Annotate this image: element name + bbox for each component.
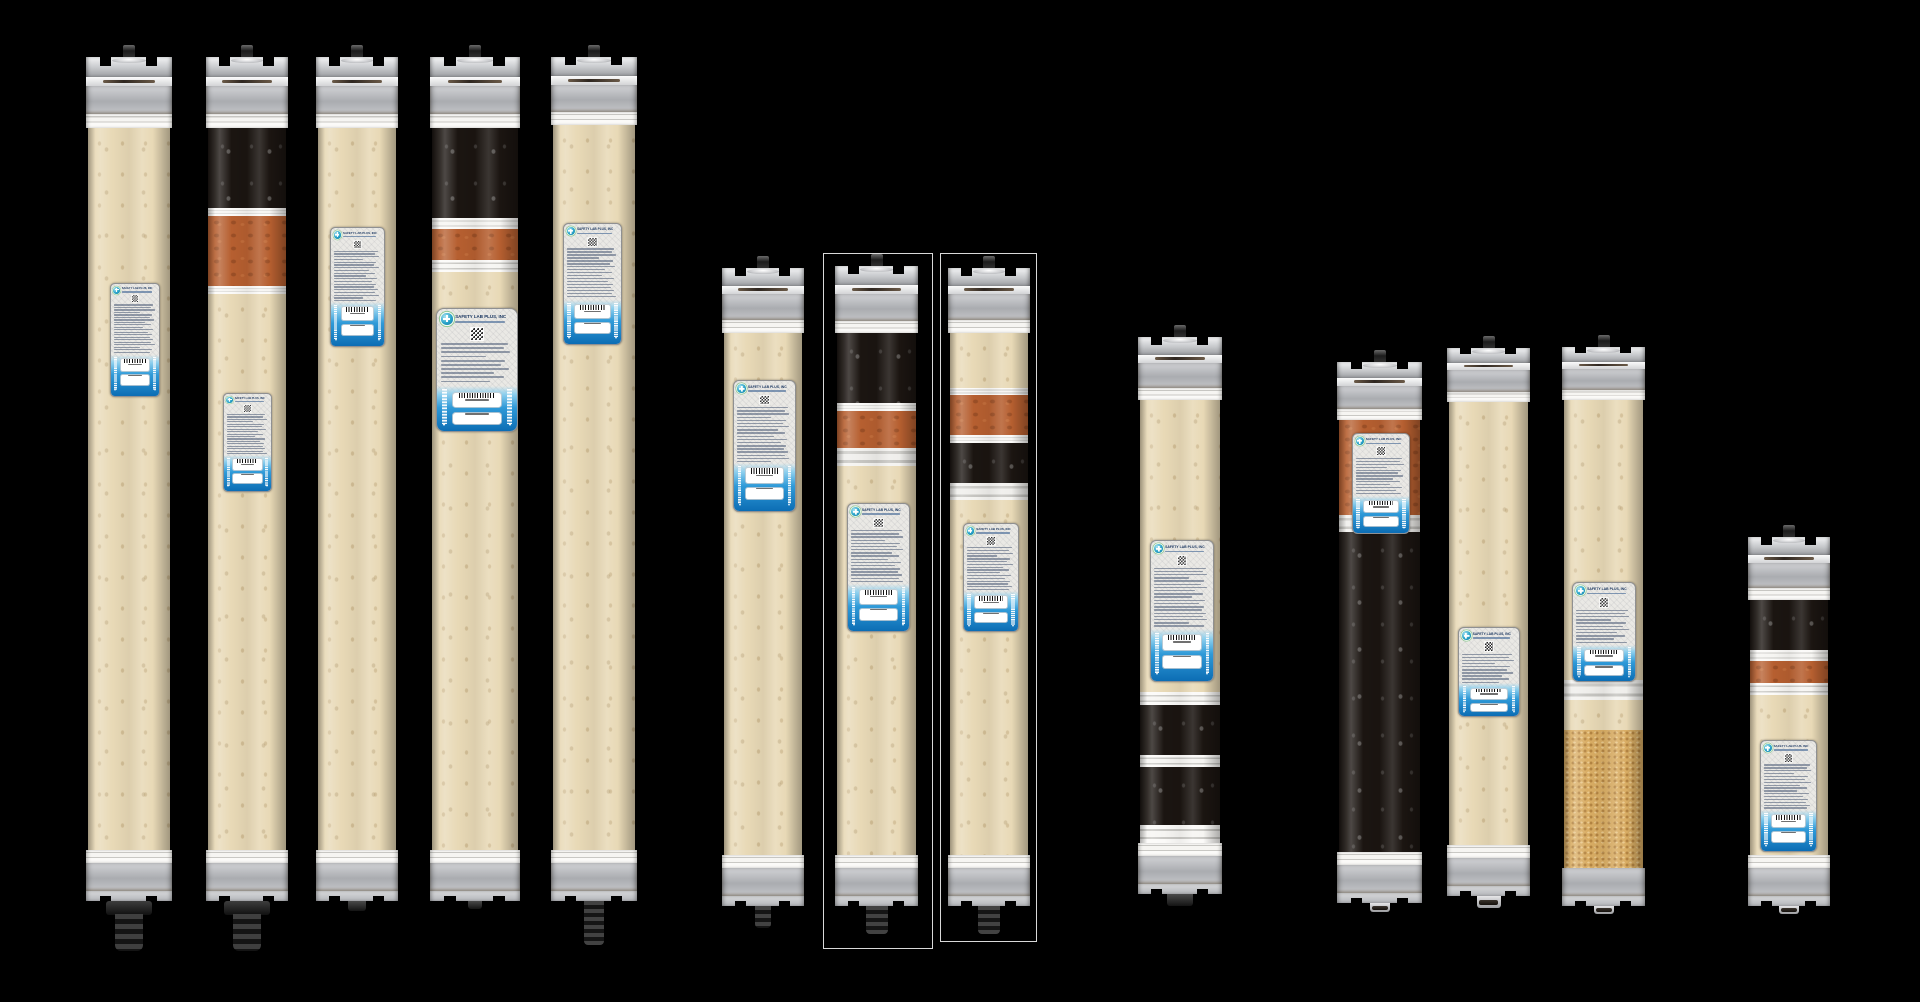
cap-stripe-band	[430, 114, 520, 128]
text-line	[1576, 616, 1629, 617]
bottom-stripe-band	[206, 850, 288, 863]
text-line	[334, 275, 366, 276]
text-line	[334, 281, 372, 282]
label-header-text: SAFETY LAB PLUS, INC	[122, 288, 157, 293]
cap-shiny-band	[430, 77, 520, 86]
barcode-caption-line	[241, 464, 255, 465]
vertical-text-strip-right	[1512, 686, 1516, 711]
crown-notch-left	[100, 56, 111, 66]
crown-notch-right	[493, 56, 505, 66]
text-line	[114, 327, 143, 328]
label-header-text: SAFETY LAB PLUS, INC	[577, 228, 618, 234]
text-line	[737, 432, 785, 433]
resin-segment-band	[432, 260, 518, 272]
brand-logo-icon	[334, 231, 342, 239]
text-line	[1154, 616, 1203, 617]
field-caption-line	[128, 375, 142, 376]
label-fine-print	[224, 413, 271, 454]
text-line	[567, 251, 612, 252]
text-line	[567, 293, 612, 294]
cap-slot	[568, 79, 620, 82]
barcode-icon	[1590, 650, 1618, 654]
top-collar	[1363, 363, 1397, 368]
text-line	[1356, 481, 1400, 482]
text-line	[567, 296, 616, 297]
text-line	[1154, 619, 1207, 620]
label-header: SAFETY LAB PLUS, INC	[734, 381, 795, 394]
barcode-caption-line	[1373, 506, 1389, 507]
blank-field-box	[1364, 517, 1398, 526]
castle-notch-left	[1351, 898, 1362, 904]
label-header: SAFETY LAB PLUS, INC	[224, 394, 271, 404]
crown-notch-right	[1505, 347, 1516, 354]
cap-gray-block	[86, 86, 172, 114]
vertical-text-strip-left	[1463, 686, 1467, 711]
cartridge-c2	[206, 43, 288, 951]
text-line	[441, 356, 485, 358]
product-label: SAFETY LAB PLUS, INC	[563, 223, 622, 345]
barcode-icon	[459, 393, 495, 398]
label-tagline-line	[1165, 551, 1204, 553]
bottom-gray-block	[316, 863, 398, 891]
text-line	[737, 426, 789, 427]
product-label: SAFETY LAB PLUS, INC	[1760, 740, 1817, 852]
qr-code-icon	[471, 328, 483, 340]
label-header: SAFETY LAB PLUS, INC	[331, 228, 384, 239]
crown-notch-left	[444, 56, 456, 66]
cap-slot	[1764, 557, 1813, 560]
bottom-stripe-band	[1447, 845, 1530, 858]
crown-notch-left	[1761, 536, 1772, 545]
vertical-text-strip-left	[567, 303, 570, 338]
bottom-castellation	[86, 891, 172, 901]
text-line	[1356, 461, 1400, 462]
text-line	[1764, 799, 1808, 800]
bottom-connector-flange	[224, 901, 270, 915]
label-blue-footer	[437, 386, 517, 431]
barcode-box	[453, 393, 501, 407]
label-fine-print	[1353, 457, 1409, 494]
label-header: SAFETY LAB PLUS, INC	[111, 284, 159, 294]
text-line	[1764, 764, 1809, 765]
brand-logo-icon	[567, 227, 575, 235]
text-line	[1462, 654, 1512, 655]
text-line	[737, 458, 789, 459]
bottom-castellation	[430, 891, 520, 901]
qr-code-icon	[760, 396, 769, 405]
cap-stripe-band	[1562, 390, 1645, 400]
bottom-stripe-band	[430, 850, 520, 863]
cap-slot	[1354, 380, 1405, 383]
cap-shiny-band	[551, 76, 637, 85]
bottom-stem	[584, 901, 604, 945]
cap-slot	[448, 80, 502, 83]
text-line	[334, 286, 375, 287]
bottom-stem	[755, 906, 771, 928]
bottom-castellation	[1337, 893, 1422, 903]
crown-notch-right	[611, 56, 622, 65]
text-line	[1356, 484, 1390, 485]
text-line	[334, 295, 379, 296]
label-fine-print	[1459, 652, 1519, 683]
text-line	[441, 381, 489, 383]
text-line	[1764, 785, 1800, 786]
crown-notch-right	[263, 56, 274, 66]
field-caption-line	[1595, 666, 1613, 667]
top-collar	[231, 58, 264, 63]
bottom-gray-block	[86, 863, 172, 891]
castle-notch-right	[1505, 891, 1516, 897]
vertical-text-strip-left	[1155, 633, 1159, 673]
blank-field-box	[1163, 656, 1200, 668]
barcode-box	[233, 459, 261, 470]
bottom-stripe-band	[1138, 843, 1222, 856]
crown-notch-left	[735, 267, 746, 276]
text-line	[567, 284, 613, 285]
crown-notch-left	[1460, 347, 1471, 354]
cap-stripe-band	[1748, 588, 1830, 600]
vertical-text-strip-left	[114, 357, 117, 389]
text-line	[1154, 571, 1203, 572]
blank-field-box	[575, 323, 609, 334]
text-line	[1356, 490, 1396, 491]
text-line	[1764, 787, 1807, 788]
bottom-nub	[1594, 906, 1614, 914]
resin-segment-band	[1140, 825, 1221, 843]
text-line	[227, 446, 263, 447]
blank-field-box	[233, 474, 261, 483]
label-header: SAFETY LAB PLUS, INC	[1151, 541, 1213, 554]
barcode-caption-line	[350, 313, 365, 314]
text-line	[567, 287, 611, 288]
blank-field-box	[1471, 704, 1507, 712]
text-line	[737, 417, 771, 418]
qr-code-icon	[132, 295, 139, 302]
cap-shiny-band	[722, 286, 804, 294]
text-line	[1154, 574, 1207, 575]
cap-gray-block	[551, 85, 637, 112]
top-collar	[577, 58, 611, 63]
cap-gray-block	[1748, 563, 1830, 588]
brand-logo-icon	[441, 313, 453, 325]
label-fine-print	[1573, 608, 1635, 643]
text-line	[227, 453, 267, 454]
cap-stripe-band	[1337, 409, 1422, 420]
top-collar	[112, 58, 146, 63]
text-line	[567, 290, 614, 291]
text-line	[1764, 773, 1794, 774]
bottom-castellation	[1562, 896, 1645, 906]
brand-logo-icon	[737, 384, 746, 393]
castle-notch-left	[444, 896, 456, 902]
text-line	[1462, 666, 1510, 667]
qr-code-icon	[244, 405, 251, 412]
label-header-text: SAFETY LAB PLUS, INC	[343, 232, 381, 237]
label-blue-footer	[111, 355, 159, 396]
bottom-gray-block	[1748, 868, 1830, 896]
text-line	[334, 289, 378, 290]
crown-notch-right	[1197, 336, 1208, 345]
bottom-gray-block	[430, 863, 520, 891]
field-caption-line	[350, 325, 365, 326]
label-blue-footer	[1353, 496, 1409, 533]
cap-stripe-band	[206, 114, 288, 128]
cap-stripe-band	[1138, 388, 1222, 400]
text-line	[114, 334, 152, 335]
cartridge-c6	[722, 254, 804, 928]
text-line	[1462, 663, 1495, 664]
resin-body	[88, 128, 171, 850]
cap-gray-block	[430, 86, 520, 114]
text-line	[114, 339, 154, 340]
bottom-castellation	[1138, 884, 1222, 894]
text-line	[1764, 805, 1809, 806]
text-line	[1154, 622, 1188, 623]
label-tagline-line	[122, 291, 152, 292]
label-blue-footer	[331, 302, 384, 346]
field-caption-line	[584, 323, 600, 324]
resin-segment-tan	[88, 128, 171, 850]
text-line	[114, 352, 150, 353]
text-line	[1356, 458, 1402, 459]
barcode-icon	[751, 468, 778, 473]
cap-shiny-band	[1447, 363, 1530, 370]
text-line	[1356, 478, 1393, 479]
vertical-text-strip-left	[442, 389, 447, 424]
text-line	[1154, 609, 1201, 610]
bottom-gray-block	[1447, 858, 1530, 886]
text-line	[567, 260, 613, 261]
label-blue-footer	[1573, 645, 1635, 681]
cap-stripe-band	[551, 112, 637, 125]
text-line	[1356, 475, 1403, 476]
label-brand-text: SAFETY LAB PLUS, INC	[1165, 546, 1210, 550]
brand-logo-icon	[1356, 437, 1364, 445]
resin-segment-orange	[432, 229, 518, 260]
label-brand-text: SAFETY LAB PLUS, INC	[235, 398, 269, 401]
text-line	[1154, 593, 1203, 594]
text-line	[737, 429, 777, 430]
field-caption-line	[241, 474, 255, 475]
vertical-text-strip-right	[265, 458, 268, 486]
label-fine-print	[734, 406, 795, 463]
bottom-stripe-band	[1337, 852, 1422, 865]
blank-field-box	[121, 375, 150, 385]
text-line	[227, 443, 265, 444]
label-header: SAFETY LAB PLUS, INC	[1573, 583, 1635, 596]
text-line	[1356, 493, 1401, 494]
resin-segment-band	[432, 218, 518, 229]
label-tagline-line	[1473, 637, 1510, 639]
qr-code-icon	[1377, 447, 1385, 455]
text-line	[227, 424, 265, 425]
bottom-stripe-band	[722, 855, 804, 868]
text-line	[1764, 767, 1807, 768]
vertical-text-strip-right	[507, 389, 512, 424]
text-line	[227, 448, 266, 449]
cap-gray-block	[316, 86, 398, 114]
text-line	[334, 259, 363, 260]
product-label: SAFETY LAB PLUS, INC	[330, 227, 385, 347]
text-line	[1764, 782, 1810, 783]
label-brand-text: SAFETY LAB PLUS, INC	[343, 232, 381, 235]
text-line	[227, 419, 267, 420]
bottom-gray-block	[722, 868, 804, 896]
qr-code-icon	[1485, 642, 1494, 651]
text-line	[1576, 635, 1625, 636]
text-line	[114, 347, 140, 348]
castle-notch-right	[373, 896, 384, 902]
resin-segment-tan	[1449, 402, 1529, 845]
cap-stripe-band	[722, 320, 804, 333]
barcode-box	[1585, 650, 1622, 661]
text-line	[441, 376, 504, 378]
text-line	[1764, 776, 1808, 777]
label-fine-print	[331, 249, 384, 301]
crown-notch-right	[1397, 361, 1408, 369]
bottom-nub	[1477, 896, 1501, 908]
label-brand-text: SAFETY LAB PLUS, INC	[122, 288, 157, 291]
text-line	[1356, 487, 1402, 488]
product-label: SAFETY LAB PLUS, INC	[1150, 540, 1214, 682]
text-line	[1462, 669, 1507, 670]
text-line	[334, 270, 369, 271]
text-line	[1154, 590, 1195, 591]
vertical-text-strip-right	[378, 305, 381, 339]
bottom-stripe-band	[1748, 855, 1830, 868]
cap-shiny-band	[1562, 362, 1645, 369]
label-header-text: SAFETY LAB PLUS, INC	[1774, 745, 1814, 751]
text-line	[227, 414, 266, 415]
text-line	[567, 281, 608, 282]
vertical-text-strip-left	[738, 466, 742, 504]
text-line	[1576, 629, 1628, 630]
bottom-connector-stem	[233, 914, 261, 951]
barcode-icon	[124, 359, 145, 363]
text-line	[1764, 793, 1809, 794]
qr-code-icon	[1178, 556, 1187, 565]
resin-segment-tan	[1564, 700, 1644, 730]
text-line	[1764, 790, 1797, 791]
qr-code-icon	[354, 241, 362, 249]
product-label: SAFETY LAB PLUS, INC	[1352, 433, 1410, 534]
label-tagline-line	[1366, 443, 1401, 444]
vertical-text-strip-right	[1206, 633, 1210, 673]
label-tagline-line	[455, 321, 505, 323]
label-tagline-line	[1587, 593, 1626, 595]
label-brand-text: SAFETY LAB PLUS, INC	[455, 315, 513, 320]
text-line	[114, 332, 148, 333]
cap-shiny-band	[1138, 355, 1222, 363]
vertical-text-strip-right	[1809, 813, 1812, 845]
text-line	[737, 407, 787, 408]
text-line	[567, 248, 614, 249]
label-header-text: SAFETY LAB PLUS, INC	[235, 398, 269, 403]
bottom-gray-block	[1337, 865, 1422, 893]
resin-segment-black	[1140, 705, 1221, 755]
cap-shiny-band	[86, 77, 172, 86]
text-line	[114, 312, 140, 313]
bottom-gray-block	[206, 863, 288, 891]
bottom-castellation	[722, 896, 804, 906]
bottom-castellation	[1447, 886, 1530, 896]
resin-segment-band	[1750, 683, 1829, 695]
barcode-icon	[346, 307, 370, 312]
top-collar	[1163, 338, 1197, 343]
text-line	[441, 360, 505, 362]
text-line	[737, 445, 786, 446]
text-line	[1356, 464, 1404, 465]
cap-stripe-band	[86, 114, 172, 128]
top-collar	[341, 58, 374, 63]
text-line	[1154, 600, 1205, 601]
resin-segment-band	[208, 286, 287, 294]
text-line	[114, 337, 151, 338]
blank-field-box	[1585, 666, 1622, 675]
resin-segment-band	[1140, 692, 1221, 705]
text-line	[567, 257, 598, 258]
cap-gray-block	[1562, 369, 1645, 390]
text-line	[334, 284, 376, 285]
brand-logo-icon	[1576, 586, 1585, 595]
text-line	[334, 253, 375, 254]
resin-segment-band	[208, 208, 287, 216]
top-collar	[1587, 348, 1620, 353]
label-blue-footer	[1459, 683, 1519, 716]
barcode-box	[746, 468, 783, 482]
field-caption-line	[1373, 517, 1389, 518]
cap-slot	[103, 80, 155, 83]
label-header-text: SAFETY LAB PLUS, INC	[748, 386, 792, 392]
text-line	[1764, 807, 1807, 808]
text-line	[441, 347, 504, 349]
text-line	[441, 368, 509, 370]
resin-segment-black	[208, 128, 287, 208]
cap-shiny-band	[316, 77, 398, 86]
top-collar	[1472, 349, 1505, 354]
text-line	[441, 351, 509, 353]
text-line	[737, 439, 787, 440]
barcode-icon	[580, 305, 605, 310]
resin-segment-black	[1140, 767, 1221, 825]
blank-field-box	[342, 325, 374, 335]
field-caption-line	[465, 413, 488, 415]
barcode-box	[1471, 689, 1507, 699]
product-label: SAFETY LAB PLUS, INC	[436, 308, 518, 432]
label-header: SAFETY LAB PLUS, INC	[564, 224, 621, 236]
resin-body	[432, 128, 518, 850]
cap-slot	[738, 288, 787, 291]
product-label: SAFETY LAB PLUS, INC	[110, 283, 160, 397]
text-line	[227, 438, 265, 439]
text-line	[737, 451, 787, 452]
label-header: SAFETY LAB PLUS, INC	[1353, 434, 1409, 446]
cartridge-c4	[430, 43, 520, 909]
resin-segment-band	[1140, 755, 1221, 767]
text-line	[114, 324, 152, 325]
text-line	[567, 269, 605, 270]
selection-outline	[940, 253, 1037, 942]
castle-notch-left	[1761, 901, 1772, 907]
text-line	[1576, 610, 1627, 611]
label-brand-text: SAFETY LAB PLUS, INC	[1366, 438, 1406, 441]
label-header-text: SAFETY LAB PLUS, INC	[1587, 588, 1632, 594]
text-line	[1154, 584, 1200, 585]
label-fine-print	[564, 247, 621, 297]
cap-slot	[222, 80, 271, 83]
castle-notch-right	[1620, 901, 1631, 907]
barcode-caption-line	[584, 311, 600, 312]
